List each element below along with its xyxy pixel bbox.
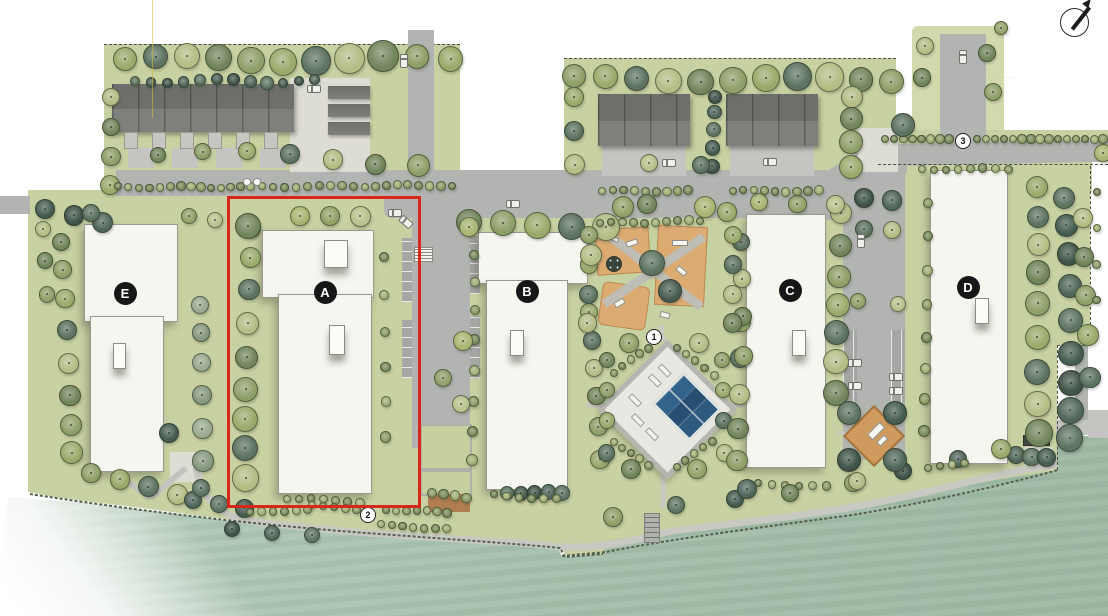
boundary-dashed-east-step	[1057, 345, 1090, 346]
building-e-roof-access	[113, 343, 126, 369]
survey-annotation-line2: · ·· ·	[898, 65, 1068, 74]
pool-lounge-chair	[631, 413, 645, 427]
pool-lounge-chair	[648, 373, 662, 387]
building-b-roof-access	[510, 330, 524, 356]
play-equipment	[672, 240, 688, 246]
townhome-row-east-2	[726, 94, 818, 146]
dock	[644, 513, 660, 543]
garage-row-3	[328, 122, 370, 135]
boundary-dashed-street3	[878, 164, 1108, 165]
building-a-highlight-box	[227, 196, 421, 508]
building-d	[930, 170, 1008, 464]
building-c-roof-access	[792, 330, 806, 356]
townhome-porch-2	[152, 132, 166, 149]
north-arrow-icon	[1058, 0, 1102, 40]
walk-pool-north	[661, 326, 663, 342]
walk-plaza-v-left	[112, 470, 150, 498]
survey-annotation-line1: ····· ···	[898, 56, 1068, 65]
building-d-roof-access	[975, 298, 989, 324]
building-b-upper	[478, 232, 588, 284]
townhome-porch-6	[264, 132, 278, 149]
walk-plaza-v-right	[150, 468, 186, 498]
townhome-porch-1	[124, 132, 138, 149]
survey-annotation: ····· ··· · ·· · ········ ··· ·· ···· ··…	[898, 56, 1068, 83]
boundary-dashed-east-upper	[1090, 166, 1091, 345]
pool-lounge-chair	[658, 364, 672, 378]
townhome-porch-5	[236, 132, 250, 149]
pool-lounge-chair	[628, 393, 642, 407]
building-e-lower	[90, 316, 164, 472]
grill-bench	[876, 435, 888, 447]
fold-line	[152, 0, 153, 118]
townhome-porch-3	[180, 132, 194, 149]
playground-spinner	[606, 256, 622, 272]
dumpster-2	[1037, 435, 1050, 446]
building-b-lower	[486, 280, 568, 490]
building-c	[746, 214, 826, 468]
survey-annotation-line3: ········ ··· ·· ···· ·······	[898, 74, 1068, 83]
swimming-pool	[653, 373, 721, 441]
townhome-row-west	[112, 84, 294, 132]
garage-row-1	[328, 86, 370, 99]
dumpster-1	[1023, 435, 1036, 446]
site-plan: ····· ··· · ·· · ········ ··· ·· ···· ··…	[0, 0, 1108, 616]
townhome-row-east-1	[598, 94, 690, 146]
building-e-upper	[84, 224, 178, 322]
pool-lounge-chair	[645, 427, 659, 441]
compass-tip	[1082, 0, 1094, 9]
garage-row-2	[328, 104, 370, 117]
boundary-dashed-east-lower	[1057, 345, 1058, 470]
townhome-porch-4	[208, 132, 222, 149]
